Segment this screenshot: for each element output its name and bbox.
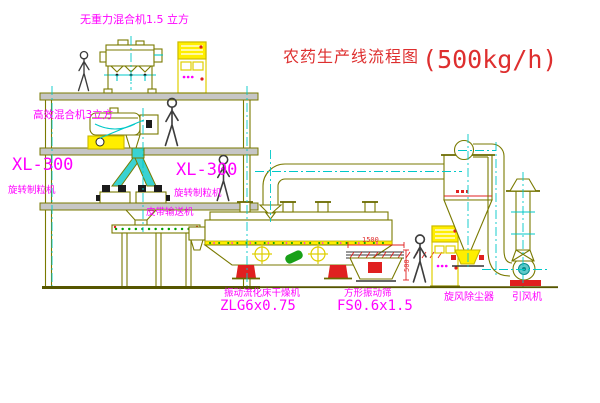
sieve-motor [368,262,382,273]
belt-conveyor [112,225,205,287]
page-title-text: 农药生产线流程图 [283,47,419,66]
deck-1 [40,93,258,100]
person-icon [165,99,178,146]
person-icon [79,52,89,91]
label-granulator-left: 旋转制粒机 [8,186,56,196]
fan-base [510,280,541,286]
person-icon [413,235,426,282]
granulator-left-machine [96,185,130,203]
label-fan: 引风机 [512,293,542,303]
label-belt-conveyor: 皮带输送机 [146,208,194,218]
label-dryer-model: ZLG6x0.75 [220,299,296,313]
dim-sieve-length: 1500 [362,237,379,244]
zero-gravity-mixer [100,40,163,93]
label-granulator-model-mid: XL-300 [176,162,237,179]
label-cyclone: 旋风除尘器 [444,293,494,303]
page-title: 农药生产线流程图(500kg/h) [283,47,557,72]
label-zero-gravity-mixer: 无重力混合机1.5 立方 [80,14,189,25]
dim-sieve-height: 500 [404,259,411,272]
label-granulator-model-left: XL-300 [12,157,73,174]
label-granulator-mid: 旋转制粒机 [174,189,222,199]
diagram-canvas: 农药生产线流程图(500kg/h) 无重力混合机1.5 立方 高效混合机3立方 … [0,0,600,403]
deck-2 [40,148,258,155]
control-cabinet-top [176,42,208,93]
dryer-feed-hopper [189,227,205,240]
cyclone-outlet-elbow [455,141,474,160]
label-high-eff-mixer: 高效混合机3立方 [33,110,113,121]
label-sieve-model: FS0.6x1.5 [337,299,413,313]
page-title-capacity: (500kg/h) [422,45,557,74]
cyclone-discharge-valve [455,250,480,264]
granulator-right-machine [136,185,170,203]
